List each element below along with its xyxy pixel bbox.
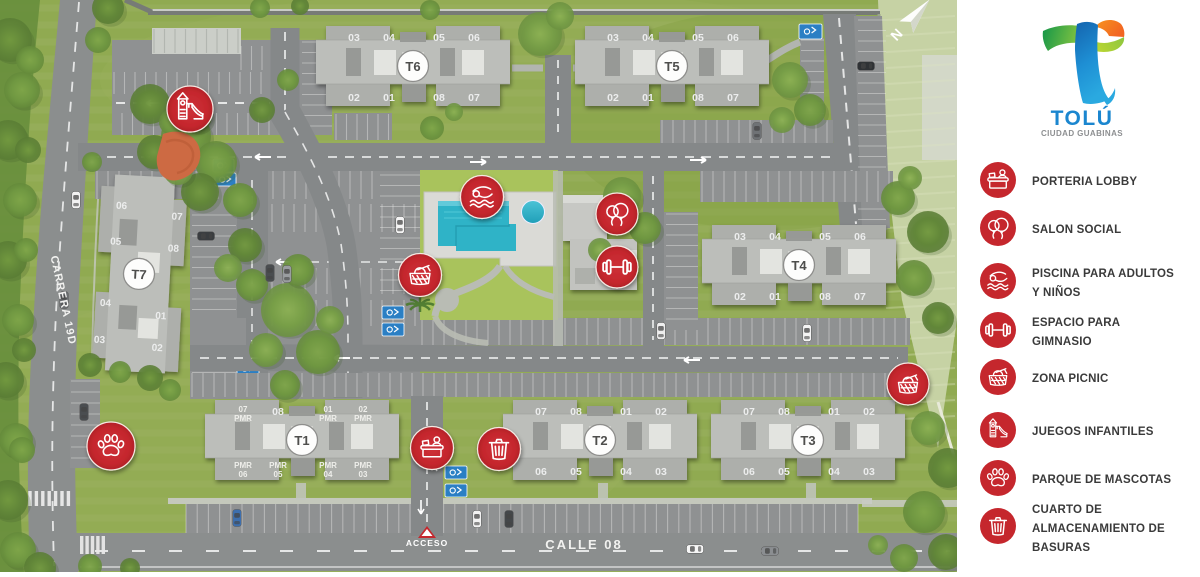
svg-text:06: 06	[535, 466, 547, 478]
svg-text:06: 06	[854, 231, 866, 243]
svg-text:05: 05	[274, 470, 283, 479]
svg-text:05: 05	[819, 231, 831, 243]
svg-text:03: 03	[94, 335, 106, 347]
svg-text:PMR: PMR	[354, 461, 372, 470]
svg-text:02: 02	[348, 92, 360, 104]
svg-text:PMR: PMR	[269, 461, 287, 470]
svg-text:CALLE 08: CALLE 08	[545, 537, 622, 552]
svg-text:PMR: PMR	[354, 414, 372, 423]
svg-text:05: 05	[570, 466, 582, 478]
svg-text:06: 06	[727, 32, 739, 44]
svg-text:06: 06	[468, 32, 480, 44]
svg-text:T1: T1	[294, 433, 309, 448]
svg-text:T5: T5	[664, 59, 679, 74]
svg-text:02: 02	[655, 406, 667, 418]
svg-text:01: 01	[828, 406, 840, 418]
svg-text:07: 07	[743, 406, 755, 418]
svg-text:Y NIÑOS: Y NIÑOS	[1032, 286, 1081, 299]
svg-text:02: 02	[863, 406, 875, 418]
svg-text:01: 01	[155, 311, 167, 323]
svg-text:T2: T2	[592, 433, 607, 448]
svg-text:PISCINA PARA ADULTOS: PISCINA PARA ADULTOS	[1032, 268, 1174, 280]
svg-text:T6: T6	[405, 59, 420, 74]
svg-text:01: 01	[769, 291, 781, 303]
svg-text:05: 05	[692, 32, 704, 44]
svg-text:04: 04	[769, 231, 781, 243]
svg-text:07: 07	[854, 291, 866, 303]
svg-text:SALON SOCIAL: SALON SOCIAL	[1032, 224, 1121, 236]
svg-text:04: 04	[100, 298, 112, 310]
svg-text:08: 08	[168, 243, 180, 255]
svg-text:PMR: PMR	[319, 414, 337, 423]
svg-text:PMR: PMR	[234, 414, 252, 423]
svg-text:06: 06	[743, 466, 755, 478]
svg-text:05: 05	[778, 466, 790, 478]
svg-text:ACCESO: ACCESO	[406, 538, 448, 548]
svg-text:08: 08	[778, 406, 790, 418]
svg-text:02: 02	[359, 405, 368, 414]
svg-text:PARQUE DE MASCOTAS: PARQUE DE MASCOTAS	[1032, 474, 1171, 486]
svg-text:04: 04	[828, 466, 840, 478]
svg-text:TOLÚ: TOLÚ	[1051, 106, 1114, 130]
svg-text:BASURAS: BASURAS	[1032, 542, 1090, 554]
svg-text:04: 04	[324, 470, 333, 479]
svg-text:07: 07	[727, 92, 739, 104]
svg-text:07: 07	[535, 406, 547, 418]
svg-text:04: 04	[642, 32, 654, 44]
svg-text:PMR: PMR	[234, 461, 252, 470]
svg-text:04: 04	[620, 466, 632, 478]
svg-text:PMR: PMR	[319, 461, 337, 470]
svg-text:01: 01	[383, 92, 395, 104]
svg-text:GIMNASIO: GIMNASIO	[1032, 336, 1092, 348]
svg-text:07: 07	[171, 212, 183, 224]
svg-text:02: 02	[151, 343, 163, 355]
svg-text:07: 07	[468, 92, 480, 104]
svg-text:03: 03	[359, 470, 368, 479]
svg-text:JUEGOS INFANTILES: JUEGOS INFANTILES	[1032, 426, 1154, 438]
svg-text:01: 01	[642, 92, 654, 104]
svg-text:08: 08	[272, 406, 284, 418]
svg-text:04: 04	[383, 32, 395, 44]
svg-text:08: 08	[433, 92, 445, 104]
svg-text:03: 03	[734, 231, 746, 243]
svg-text:05: 05	[110, 236, 122, 248]
svg-text:01: 01	[620, 406, 632, 418]
svg-text:CUARTO DE: CUARTO DE	[1032, 504, 1102, 516]
svg-text:05: 05	[433, 32, 445, 44]
svg-text:T4: T4	[791, 258, 807, 273]
svg-text:02: 02	[734, 291, 746, 303]
svg-text:03: 03	[655, 466, 667, 478]
svg-text:ZONA PICNIC: ZONA PICNIC	[1032, 373, 1109, 385]
svg-text:PORTERIA LOBBY: PORTERIA LOBBY	[1032, 176, 1137, 188]
svg-text:ESPACIO PARA: ESPACIO PARA	[1032, 317, 1120, 329]
svg-text:08: 08	[819, 291, 831, 303]
svg-text:06: 06	[239, 470, 248, 479]
svg-text:ALMACENAMIENTO DE: ALMACENAMIENTO DE	[1032, 523, 1165, 535]
svg-text:08: 08	[692, 92, 704, 104]
svg-text:T7: T7	[131, 267, 147, 283]
svg-text:01: 01	[324, 405, 333, 414]
svg-text:03: 03	[607, 32, 619, 44]
svg-text:06: 06	[116, 201, 128, 213]
svg-text:07: 07	[239, 405, 248, 414]
svg-text:08: 08	[570, 406, 582, 418]
svg-text:02: 02	[607, 92, 619, 104]
svg-text:03: 03	[863, 466, 875, 478]
svg-text:T3: T3	[800, 433, 815, 448]
svg-text:CIUDAD GUABINAS: CIUDAD GUABINAS	[1041, 129, 1123, 138]
svg-text:03: 03	[348, 32, 360, 44]
